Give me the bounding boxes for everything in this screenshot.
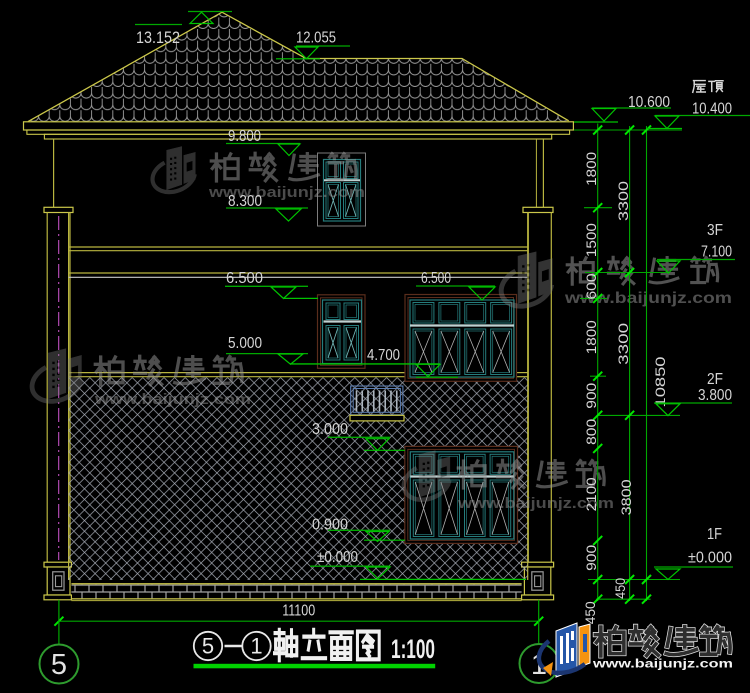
svg-text:9.800: 9.800 <box>228 128 261 145</box>
svg-text:2100: 2100 <box>583 477 599 511</box>
svg-text:3.000: 3.000 <box>312 421 348 438</box>
svg-text:www.baijunjz.com: www.baijunjz.com <box>94 391 251 408</box>
svg-text:800: 800 <box>583 419 599 445</box>
svg-text:±0.000: ±0.000 <box>317 549 358 566</box>
svg-text:900: 900 <box>583 545 599 571</box>
svg-text:450: 450 <box>582 601 598 624</box>
svg-text:10.600: 10.600 <box>628 94 670 111</box>
svg-text:3F: 3F <box>707 222 723 239</box>
svg-text:3300: 3300 <box>615 181 631 221</box>
svg-text:1: 1 <box>250 634 262 659</box>
svg-text:12.055: 12.055 <box>296 30 336 47</box>
svg-text:1:100: 1:100 <box>391 634 435 664</box>
svg-text:1500: 1500 <box>583 223 599 257</box>
svg-text:6.500: 6.500 <box>421 270 451 287</box>
svg-text:3800: 3800 <box>618 479 634 515</box>
svg-text:450: 450 <box>612 578 628 599</box>
svg-text:3300: 3300 <box>615 323 631 365</box>
svg-text:11100: 11100 <box>282 602 315 619</box>
svg-text:4.700: 4.700 <box>367 347 400 364</box>
svg-text:2F: 2F <box>707 371 723 388</box>
svg-text:3.800: 3.800 <box>698 387 732 404</box>
svg-text:1800: 1800 <box>583 320 599 354</box>
svg-text:13.152: 13.152 <box>136 28 180 47</box>
svg-text:900: 900 <box>583 383 599 409</box>
svg-text:1800: 1800 <box>583 152 599 186</box>
svg-text:0.900: 0.900 <box>312 517 348 534</box>
svg-text:6.500: 6.500 <box>226 270 263 287</box>
svg-text:7.100: 7.100 <box>701 244 732 261</box>
svg-text:±0.000: ±0.000 <box>688 550 732 567</box>
svg-text:8.300: 8.300 <box>228 193 262 210</box>
svg-text:600: 600 <box>583 273 599 299</box>
svg-text:10850: 10850 <box>652 356 668 407</box>
svg-text:www.baijunjz.com: www.baijunjz.com <box>592 657 733 671</box>
svg-text:10.400: 10.400 <box>692 101 732 118</box>
svg-text:5: 5 <box>51 649 67 681</box>
svg-text:5: 5 <box>202 634 214 659</box>
svg-text:1F: 1F <box>707 526 722 543</box>
svg-text:5.000: 5.000 <box>228 335 262 352</box>
